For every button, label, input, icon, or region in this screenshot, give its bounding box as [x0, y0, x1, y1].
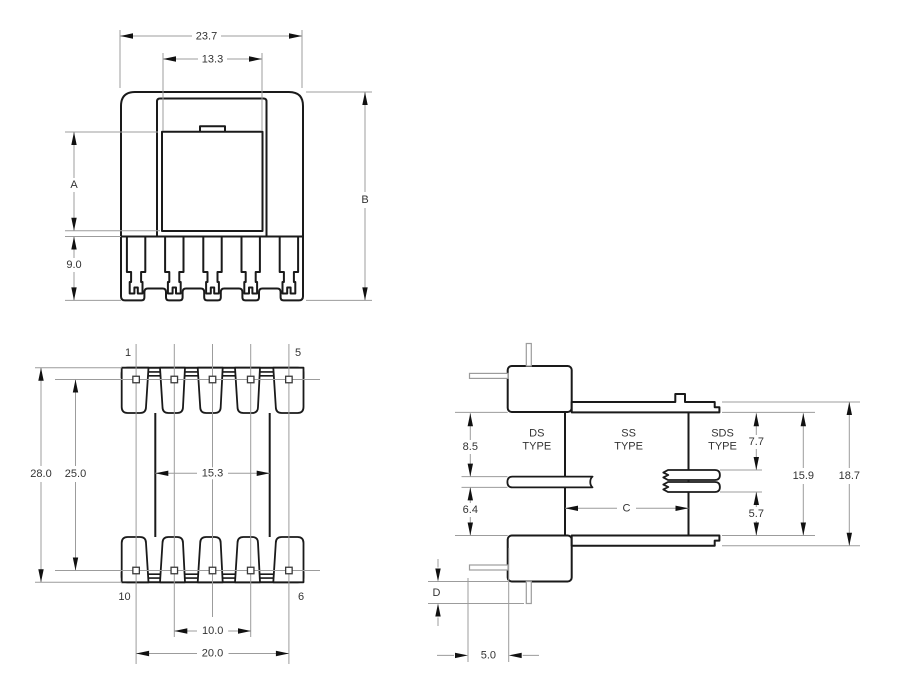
- arrowhead: [754, 413, 759, 426]
- bottom-horizontal-pin: [470, 565, 509, 570]
- arrowhead: [468, 487, 473, 500]
- arrowhead: [71, 218, 76, 231]
- pin-center-square: [171, 376, 178, 383]
- arrowhead: [468, 523, 473, 536]
- pin-center-square: [133, 567, 140, 574]
- dim-core-window-label: 15.3: [202, 467, 223, 479]
- drawing-page: 23.7 13.3 A 9.0 B 28.0 25.0 15.3 10.0 20…: [0, 0, 900, 675]
- generated-linework: [127, 237, 145, 294]
- arrowhead: [565, 506, 578, 511]
- dim-pin-row-spacing-label: 25.0: [65, 468, 86, 480]
- generated-linework: [280, 237, 298, 294]
- sds-type-label-line1: SDS: [711, 428, 734, 440]
- arrowhead: [155, 471, 168, 476]
- generated-linework: [235, 537, 260, 582]
- generated-linework: [235, 368, 260, 413]
- generated-linework: [122, 537, 149, 582]
- ss-type-label-line1: SS: [621, 428, 636, 440]
- dim-outer-pin-span-label: 20.0: [202, 648, 223, 660]
- arrowhead: [73, 380, 78, 393]
- arrowhead: [362, 92, 367, 105]
- dim-pin-offset-label: 5.0: [481, 649, 496, 661]
- generated-linework: [198, 368, 223, 413]
- arrowhead: [289, 33, 302, 38]
- pin-center-square: [286, 567, 293, 574]
- front-view: [65, 30, 372, 300]
- side-view: [428, 344, 860, 663]
- dim-winding-length-label: C: [623, 502, 631, 514]
- pin-number-10: 10: [118, 591, 130, 603]
- pin-center-square: [286, 376, 293, 383]
- arrowhead: [468, 413, 473, 426]
- arrowhead: [362, 287, 367, 300]
- sds-type-label-line2: TYPE: [708, 441, 737, 453]
- arrowhead: [509, 653, 522, 658]
- side-extension-dim-lines: [428, 402, 860, 662]
- arrowhead: [238, 628, 251, 633]
- dim-outer-width-label: 23.7: [196, 31, 217, 43]
- arrowhead: [754, 492, 759, 505]
- dim-flange-inner-label: 15.9: [793, 470, 814, 482]
- dim-total-height-label: B: [361, 194, 368, 206]
- ds-type-label-line2: TYPE: [522, 441, 551, 453]
- front-pin-channels: [127, 237, 298, 294]
- sds-type-pin-upper: [663, 470, 720, 480]
- dimension-labels: 23.7 13.3 A 9.0 B 28.0 25.0 15.3 10.0 20…: [27, 30, 863, 661]
- arrowhead: [249, 56, 262, 61]
- ss-type-label-line2: TYPE: [614, 441, 643, 453]
- dim-upper-window-label: 8.5: [463, 441, 478, 453]
- sds-type-pin-lower: [663, 482, 720, 492]
- pin-center-square: [247, 376, 254, 383]
- pin-center-square: [247, 567, 254, 574]
- arrowhead: [71, 237, 76, 250]
- arrowhead: [73, 558, 78, 571]
- generated-linework: [165, 237, 183, 294]
- pin-center-square: [209, 567, 216, 574]
- generated-linework: [198, 537, 223, 582]
- generated-linework: [160, 537, 185, 582]
- pin-center-square: [209, 376, 216, 383]
- dim-inner-pin-span-label: 10.0: [202, 625, 223, 637]
- front-extension-dim-lines: [65, 30, 372, 300]
- generated-linework: [203, 237, 221, 294]
- pin-center-square: [133, 376, 140, 383]
- arrowhead: [801, 523, 806, 536]
- technical-drawing: 23.7 13.3 A 9.0 B 28.0 25.0 15.3 10.0 20…: [0, 0, 900, 675]
- top-horizontal-pin: [470, 373, 509, 378]
- arrowhead: [71, 132, 76, 145]
- arrowhead: [676, 506, 689, 511]
- arrowhead: [71, 287, 76, 300]
- ds-type-pin: [507, 477, 592, 488]
- generated-linework: [160, 368, 185, 413]
- arrowhead: [754, 523, 759, 536]
- pin-number-6: 6: [298, 591, 304, 603]
- arrowhead: [163, 56, 176, 61]
- dim-pin-section-height-label: 9.0: [66, 259, 81, 271]
- side-bottom-plate: [572, 536, 720, 546]
- generated-linework: [242, 237, 260, 294]
- arrowhead: [847, 402, 852, 415]
- dim-sds-lower-label: 5.7: [749, 508, 764, 520]
- arrowhead: [754, 457, 759, 470]
- arrowhead: [136, 651, 149, 656]
- arrowhead: [801, 413, 806, 426]
- dim-lower-window-label: 6.4: [463, 504, 478, 516]
- pin-center-square: [171, 567, 178, 574]
- dim-overall-length-label: 28.0: [30, 468, 51, 480]
- bottom-vertical-pin: [526, 582, 531, 604]
- pin-number-5: 5: [295, 347, 301, 359]
- front-inner-frame: [157, 99, 267, 237]
- side-bottom-flange: [508, 536, 572, 582]
- dim-pin-protrusion-label: D: [433, 587, 441, 599]
- generated-linework: [122, 368, 149, 413]
- ds-type-label-line1: DS: [529, 428, 544, 440]
- pin-number-1: 1: [125, 347, 131, 359]
- arrowhead: [468, 464, 473, 477]
- front-winding-window: [162, 132, 263, 231]
- dim-overall-height-label: 18.7: [839, 470, 860, 482]
- arrowhead: [435, 569, 440, 582]
- arrowhead: [120, 33, 133, 38]
- arrowhead: [276, 651, 289, 656]
- side-top-flange: [508, 366, 572, 412]
- front-body-outline: [121, 92, 303, 300]
- arrowhead: [174, 628, 187, 633]
- top-vertical-pin: [526, 344, 531, 367]
- dim-inner-width-label: 13.3: [202, 54, 223, 66]
- arrowhead: [847, 533, 852, 546]
- dim-window-height-label: A: [70, 179, 78, 191]
- arrowhead: [38, 368, 43, 381]
- arrowhead: [435, 604, 440, 617]
- dim-sds-upper-label: 7.7: [749, 436, 764, 448]
- side-top-plate: [572, 394, 720, 412]
- arrowhead: [455, 653, 468, 658]
- arrowhead: [38, 569, 43, 582]
- arrowhead: [257, 471, 270, 476]
